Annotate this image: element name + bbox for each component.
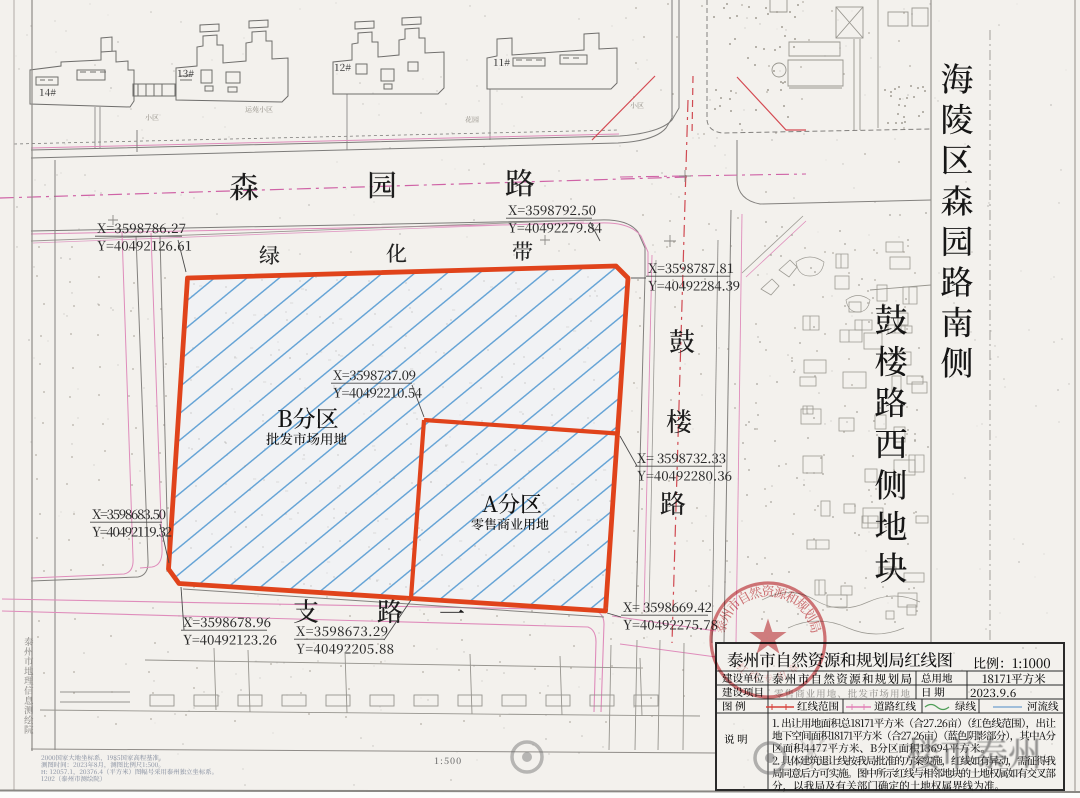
svg-text:X=3598678.96: X=3598678.96 [183, 612, 271, 631]
svg-text:运苑小区: 运苑小区 [245, 105, 273, 115]
svg-text:X=3598786.27: X=3598786.27 [97, 218, 186, 237]
svg-text:带: 带 [512, 236, 533, 266]
svg-text:楼市泰州: 楼市泰州 [906, 727, 1042, 776]
svg-text:Y=40492123.26: Y=40492123.26 [183, 630, 277, 649]
svg-text:零售商业用地: 零售商业用地 [471, 514, 549, 533]
svg-text:X=3598673.29: X=3598673.29 [296, 621, 388, 640]
svg-text:西: 西 [875, 419, 908, 466]
svg-text:侧: 侧 [941, 338, 974, 385]
svg-text:日 期: 日 期 [921, 685, 945, 700]
svg-text:X=3598792.50: X=3598792.50 [508, 200, 596, 219]
svg-text:2023.9.6: 2023.9.6 [970, 685, 1016, 701]
svg-text:河流线: 河流线 [1027, 699, 1059, 714]
svg-text:楼: 楼 [875, 336, 908, 383]
svg-text:说 明: 说 明 [724, 732, 748, 747]
svg-text:批发市场用地: 批发市场用地 [266, 428, 347, 448]
svg-text:零售商业用地、批发市场用地: 零售商业用地、批发市场用地 [774, 686, 910, 700]
svg-text:分，以我局及有关部门确定的土地权属界线为准。: 分，以我局及有关部门确定的土地权属界线为准。 [772, 779, 1005, 794]
svg-text:总用地: 总用地 [921, 671, 953, 686]
svg-text:Y=40492126.61: Y=40492126.61 [97, 236, 192, 255]
svg-text:泰州市自然资源和规划局红线图: 泰州市自然资源和规划局红线图 [727, 647, 953, 671]
svg-text:Y=40492210.54: Y=40492210.54 [333, 383, 423, 402]
svg-text:14#: 14# [39, 84, 56, 99]
svg-text:化: 化 [386, 238, 407, 268]
svg-text:院: 院 [24, 722, 34, 736]
svg-text:图 例: 图 例 [722, 699, 746, 714]
svg-text:Y=40492279.84: Y=40492279.84 [508, 218, 603, 237]
svg-text:X=3598787.81: X=3598787.81 [648, 258, 734, 277]
svg-text:园: 园 [367, 161, 397, 205]
svg-text:X=3598683.50: X=3598683.50 [92, 504, 166, 523]
svg-text:Y=40492275.78: Y=40492275.78 [623, 615, 718, 634]
svg-text:小区: 小区 [145, 113, 159, 123]
svg-text:X= 3598669.42: X= 3598669.42 [623, 597, 712, 616]
svg-text:Y=40492280.36: Y=40492280.36 [637, 466, 732, 485]
svg-text:森: 森 [229, 163, 259, 207]
svg-text:绿: 绿 [259, 240, 280, 270]
svg-text:路: 路 [505, 159, 535, 203]
svg-text:花园: 花园 [465, 115, 479, 125]
svg-text:红线范围: 红线范围 [797, 699, 839, 714]
svg-text:专: 专 [763, 670, 773, 685]
svg-text:地: 地 [875, 502, 908, 549]
svg-text:11#: 11# [493, 54, 510, 69]
svg-text:小区: 小区 [630, 101, 644, 111]
svg-text:路: 路 [660, 484, 686, 521]
svg-text:块: 块 [875, 543, 908, 590]
svg-text:路: 路 [875, 378, 908, 425]
svg-text:比例：1:1000: 比例：1:1000 [973, 653, 1051, 672]
svg-text:12#: 12# [334, 59, 351, 74]
svg-text:侧: 侧 [875, 460, 908, 507]
svg-text:米: 米 [795, 727, 829, 776]
svg-text:鼓: 鼓 [875, 295, 908, 342]
svg-text:X=3598737.09: X=3598737.09 [333, 365, 416, 384]
svg-text:13#: 13# [177, 65, 194, 80]
svg-text:楼: 楼 [666, 402, 692, 439]
svg-text:道路红线: 道路红线 [874, 699, 916, 714]
svg-text:鼓: 鼓 [669, 322, 695, 359]
svg-text:1:500: 1:500 [434, 754, 462, 767]
svg-text:绿线: 绿线 [955, 699, 976, 714]
svg-text:Y=40492284.39: Y=40492284.39 [648, 276, 740, 295]
svg-text:X= 3598732.33: X= 3598732.33 [637, 448, 726, 467]
